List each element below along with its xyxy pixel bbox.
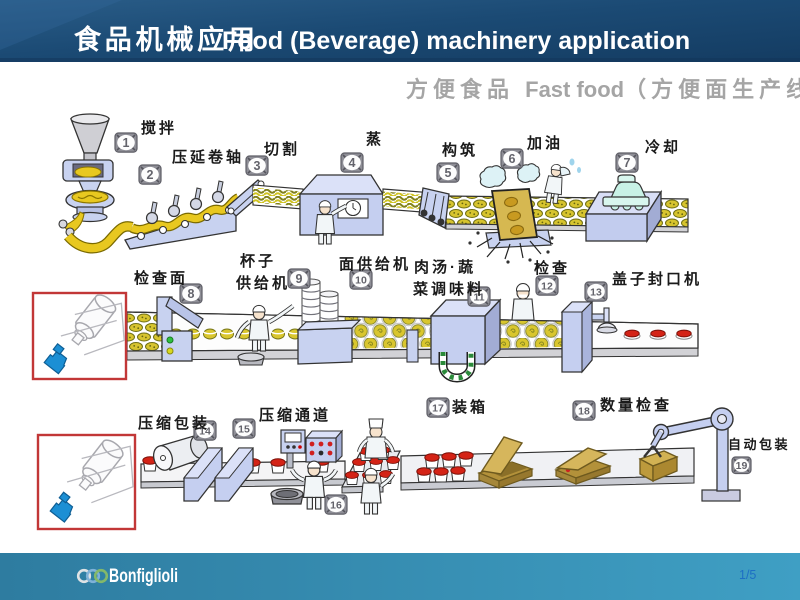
svg-text:Food (Beverage) machinery appl: Food (Beverage) machinery application	[222, 27, 690, 55]
svg-text:盖子封口机: 盖子封口机	[612, 270, 702, 288]
svg-text:16: 16	[330, 499, 342, 511]
svg-text:1/5: 1/5	[739, 568, 756, 582]
svg-text:供给机: 供给机	[235, 274, 290, 292]
svg-text:1: 1	[123, 136, 130, 150]
svg-text:3: 3	[254, 159, 261, 173]
svg-text:12: 12	[541, 280, 553, 292]
svg-text:加油: 加油	[526, 134, 563, 152]
svg-text:面供给机: 面供给机	[339, 255, 411, 273]
svg-text:搅拌: 搅拌	[141, 119, 177, 137]
svg-text:2: 2	[147, 168, 154, 182]
svg-text:肉汤·蔬: 肉汤·蔬	[414, 258, 476, 276]
svg-text:13: 13	[590, 286, 602, 298]
svg-text:4: 4	[349, 156, 356, 170]
svg-text:检查面: 检查面	[134, 269, 188, 287]
svg-text:15: 15	[238, 423, 250, 435]
svg-text:冷却: 冷却	[645, 138, 681, 156]
svg-text:18: 18	[578, 405, 590, 417]
svg-text:自动包装: 自动包装	[728, 437, 790, 452]
svg-text:9: 9	[296, 272, 303, 286]
svg-text:装箱: 装箱	[451, 398, 488, 416]
svg-text:Bonfiglioli: Bonfiglioli	[109, 566, 178, 587]
svg-text:杯子: 杯子	[240, 253, 276, 270]
svg-text:蒸: 蒸	[366, 130, 384, 148]
svg-text:切割: 切割	[264, 140, 300, 158]
svg-text:19: 19	[736, 460, 748, 472]
svg-text:6: 6	[509, 152, 516, 166]
svg-text:压缩包装: 压缩包装	[138, 414, 210, 432]
svg-text:检查: 检查	[534, 259, 570, 277]
svg-text:8: 8	[188, 287, 195, 301]
svg-text:压缩通道: 压缩通道	[259, 406, 331, 424]
svg-text:5: 5	[445, 166, 452, 180]
svg-text:数量检查: 数量检查	[600, 396, 672, 414]
svg-text:10: 10	[355, 274, 367, 286]
svg-text:压延卷轴: 压延卷轴	[172, 148, 244, 166]
svg-text:构筑: 构筑	[442, 141, 478, 159]
svg-text:菜调味料: 菜调味料	[412, 280, 485, 298]
svg-text:17: 17	[432, 402, 444, 414]
svg-text:方便食品 Fast food（方便面生产线）: 方便食品 Fast food（方便面生产线）	[406, 77, 800, 102]
svg-text:7: 7	[624, 156, 631, 170]
